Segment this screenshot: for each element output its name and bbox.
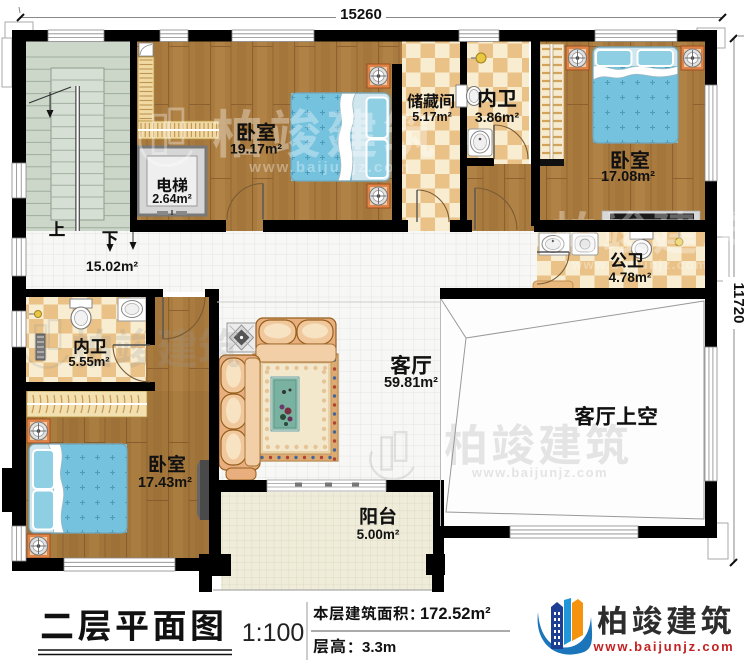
svg-text:17.08m²: 17.08m² [601,169,655,185]
svg-text:5.00m²: 5.00m² [357,527,400,542]
svg-text:3.86m²: 3.86m² [475,109,520,125]
svg-text:15.02m²: 15.02m² [86,258,138,274]
svg-text:2.64m²: 2.64m² [152,192,192,206]
svg-text:www.baijunjz.com: www.baijunjz.com [248,159,410,176]
svg-text:17.43m²: 17.43m² [138,475,192,491]
svg-text:4.78m²: 4.78m² [609,270,652,285]
svg-text:11720: 11720 [730,283,747,324]
svg-text:172.52m²: 172.52m² [420,605,491,623]
svg-text:59.81m²: 59.81m² [384,375,438,391]
svg-text:www.baijunjz.com: www.baijunjz.com [471,465,608,480]
svg-text:15260: 15260 [340,6,382,23]
svg-text:5.17m²: 5.17m² [412,110,452,124]
svg-text:19.17m²: 19.17m² [230,141,282,157]
svg-text:：3.3m: ：3.3m [347,639,396,656]
svg-text:1:100: 1:100 [242,619,305,647]
svg-text:www.baijunjz.com: www.baijunjz.com [593,639,735,654]
svg-text:5.55m²: 5.55m² [68,354,110,369]
